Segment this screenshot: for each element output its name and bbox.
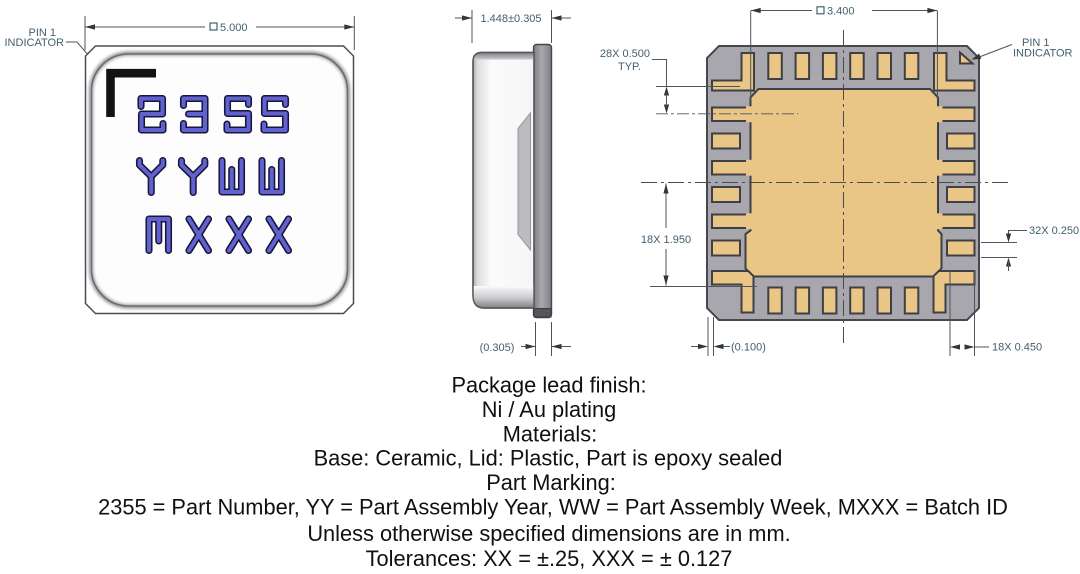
svg-text:(0.100): (0.100) [731,342,766,354]
svg-text:Materials:: Materials: [503,421,597,446]
svg-text:Tolerances: XX = ±.25, XXX = ±: Tolerances: XX = ±.25, XXX = ± 0.127 [366,546,733,571]
svg-text:Part Marking:: Part Marking: [486,470,616,495]
svg-text:1.448±0.305: 1.448±0.305 [480,13,541,25]
svg-text:18X 0.450: 18X 0.450 [992,342,1042,354]
svg-text:32X 0.250: 32X 0.250 [1029,225,1079,237]
svg-text:2355 = Part Number, YY = Part: 2355 = Part Number, YY = Part Assembly Y… [98,495,1008,520]
svg-text:28X 0.500: 28X 0.500 [600,48,650,60]
svg-text:Package lead finish:: Package lead finish: [451,373,646,398]
svg-text:5.000: 5.000 [220,22,248,34]
svg-text:Ni / Au plating: Ni / Au plating [482,397,617,422]
svg-text:3.400: 3.400 [827,6,855,18]
svg-text:18X 1.950: 18X 1.950 [641,234,691,246]
svg-text:Base: Ceramic, Lid: Plastic, P: Base: Ceramic, Lid: Plastic, Part is epo… [314,446,783,471]
svg-text:INDICATOR: INDICATOR [1013,48,1073,60]
svg-text:Unless otherwise specified dim: Unless otherwise specified dimensions ar… [307,521,790,546]
svg-text:INDICATOR: INDICATOR [5,37,65,49]
svg-text:(0.305): (0.305) [480,342,515,354]
svg-text:TYP.: TYP. [618,61,641,73]
